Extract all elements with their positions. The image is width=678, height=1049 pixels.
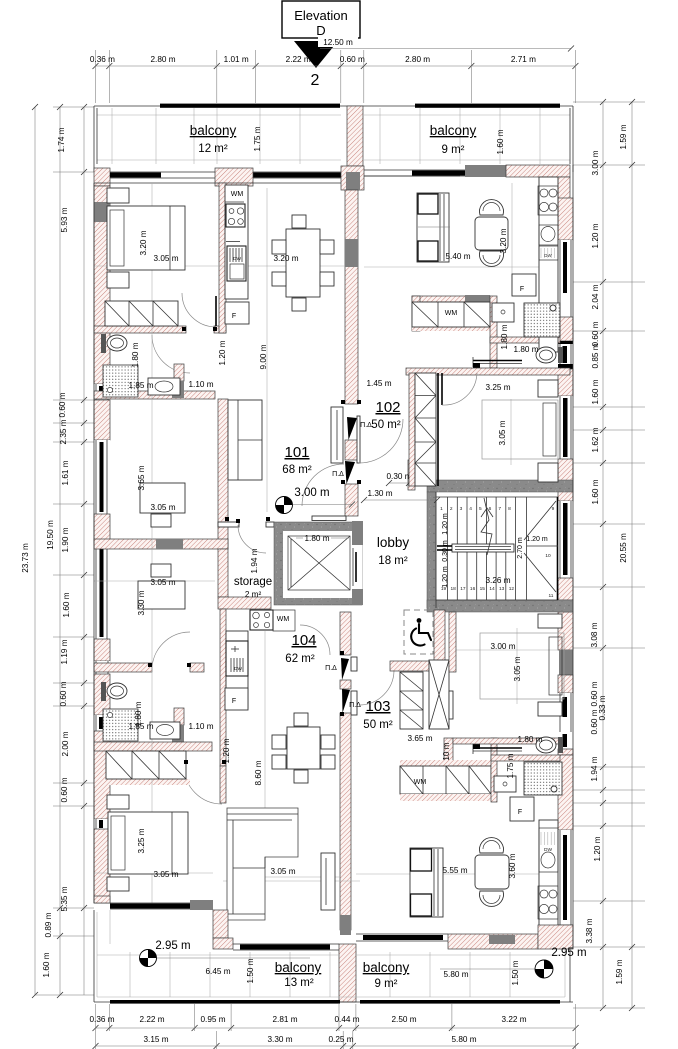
- svg-text:D: D: [316, 23, 325, 38]
- svg-text:5.40 m: 5.40 m: [445, 252, 470, 261]
- svg-text:3.22 m: 3.22 m: [501, 1015, 526, 1024]
- svg-text:4: 4: [469, 506, 472, 512]
- svg-text:F: F: [518, 809, 522, 816]
- svg-text:50 m²: 50 m²: [363, 719, 393, 731]
- svg-text:13 m²: 13 m²: [284, 977, 314, 989]
- svg-text:1.74 m: 1.74 m: [57, 127, 66, 152]
- svg-text:2.22 m: 2.22 m: [139, 1015, 164, 1024]
- svg-text:15: 15: [480, 586, 486, 592]
- svg-text:1.60 m: 1.60 m: [62, 592, 71, 617]
- svg-text:1: 1: [440, 506, 443, 512]
- svg-text:3.05 m: 3.05 m: [270, 867, 295, 876]
- svg-text:2 m²: 2 m²: [245, 590, 262, 599]
- svg-text:3.20 m: 3.20 m: [273, 254, 298, 263]
- svg-text:16: 16: [470, 586, 476, 592]
- svg-text:9: 9: [552, 506, 555, 512]
- svg-text:12: 12: [509, 586, 515, 592]
- svg-text:1.75 m: 1.75 m: [253, 126, 262, 151]
- svg-text:3.08 m: 3.08 m: [590, 622, 599, 647]
- svg-text:0.60 m: 0.60 m: [590, 709, 599, 734]
- svg-text:6: 6: [489, 506, 492, 512]
- svg-text:12 m²: 12 m²: [198, 143, 228, 155]
- svg-text:5.55 m: 5.55 m: [442, 866, 467, 875]
- svg-text:3.65 m: 3.65 m: [407, 734, 432, 743]
- svg-text:0.44 m: 0.44 m: [334, 1015, 359, 1024]
- svg-text:2.04 m: 2.04 m: [591, 284, 600, 309]
- svg-text:0.89 m: 0.89 m: [44, 912, 53, 937]
- svg-text:1.61 m: 1.61 m: [61, 460, 70, 485]
- svg-text:2.70 m: 2.70 m: [517, 537, 524, 559]
- svg-text:5.80 m: 5.80 m: [443, 970, 468, 979]
- svg-text:0.60 m: 0.60 m: [60, 777, 69, 802]
- svg-text:1.19 m: 1.19 m: [60, 639, 69, 664]
- svg-text:103: 103: [365, 698, 390, 715]
- svg-text:3.00 m: 3.00 m: [490, 642, 515, 651]
- svg-text:1.45 m: 1.45 m: [366, 379, 391, 388]
- svg-text:3.30 m: 3.30 m: [267, 1035, 292, 1044]
- svg-text:9.00 m: 9.00 m: [259, 344, 268, 369]
- svg-text:1.62 m: 1.62 m: [591, 427, 600, 452]
- svg-text:23.73 m: 23.73 m: [21, 543, 30, 573]
- svg-text:2.80 m: 2.80 m: [405, 55, 430, 64]
- svg-text:1.20 m: 1.20 m: [218, 340, 227, 365]
- svg-text:101: 101: [284, 444, 309, 461]
- svg-text:3.00 m: 3.00 m: [591, 150, 600, 175]
- svg-text:2.81 m: 2.81 m: [272, 1015, 297, 1024]
- svg-text:10: 10: [545, 553, 551, 559]
- svg-text:3.05 m: 3.05 m: [150, 578, 175, 587]
- svg-text:1.59 m: 1.59 m: [615, 959, 624, 984]
- svg-text:Elevation: Elevation: [294, 8, 347, 23]
- svg-text:0.30 m: 0.30 m: [386, 472, 411, 481]
- svg-text:0.25 m: 0.25 m: [328, 1035, 353, 1044]
- svg-text:5.93 m: 5.93 m: [60, 207, 69, 232]
- svg-text:0.60 m: 0.60 m: [591, 321, 600, 346]
- svg-text:0.36 m: 0.36 m: [90, 55, 115, 64]
- svg-text:3.15 m: 3.15 m: [143, 1035, 168, 1044]
- svg-text:3.05 m: 3.05 m: [153, 254, 178, 263]
- svg-text:0.85 m: 0.85 m: [591, 343, 600, 368]
- svg-text:0.60 m: 0.60 m: [59, 681, 68, 706]
- svg-text:17: 17: [460, 586, 466, 592]
- svg-text:11: 11: [549, 593, 554, 599]
- svg-text:7: 7: [498, 506, 501, 512]
- svg-text:DW: DW: [233, 256, 241, 262]
- svg-text:50 m²: 50 m²: [371, 419, 401, 431]
- svg-text:1.50 m: 1.50 m: [511, 960, 520, 985]
- svg-text:3.05 m: 3.05 m: [150, 503, 175, 512]
- svg-text:8.60 m: 8.60 m: [254, 760, 263, 785]
- svg-text:storage: storage: [234, 576, 272, 588]
- svg-text:0.95 m: 0.95 m: [200, 1015, 225, 1024]
- svg-text:3: 3: [460, 506, 463, 512]
- svg-text:1.94 m: 1.94 m: [590, 756, 599, 781]
- svg-text:1.90 m: 1.90 m: [61, 527, 70, 552]
- svg-text:0.36 m: 0.36 m: [89, 1015, 114, 1024]
- svg-text:0.60 m: 0.60 m: [340, 55, 365, 64]
- svg-text:19.50 m: 19.50 m: [46, 520, 55, 550]
- svg-text:18: 18: [451, 586, 457, 592]
- svg-text:3.20 m: 3.20 m: [499, 228, 508, 253]
- svg-text:18 m²: 18 m²: [378, 555, 408, 567]
- svg-text:2.71 m: 2.71 m: [511, 55, 536, 64]
- svg-text:2: 2: [450, 506, 453, 512]
- svg-text:1.10 m: 1.10 m: [188, 722, 213, 731]
- svg-text:1.85 m: 1.85 m: [128, 381, 153, 390]
- svg-text:1.59 m: 1.59 m: [619, 124, 628, 149]
- svg-text:3.00 m: 3.00 m: [294, 487, 329, 499]
- svg-text:0.30 m: 0.30 m: [442, 540, 449, 562]
- svg-text:balcony: balcony: [363, 960, 410, 975]
- svg-text:3.65 m: 3.65 m: [137, 465, 146, 490]
- svg-text:1.20 m: 1.20 m: [591, 223, 600, 248]
- svg-text:1.10 m: 1.10 m: [188, 380, 213, 389]
- svg-text:3.05 m: 3.05 m: [153, 870, 178, 879]
- svg-text:1.94 m: 1.94 m: [250, 548, 259, 573]
- svg-text:balcony: balcony: [275, 960, 322, 975]
- svg-text:1.80 m: 1.80 m: [513, 345, 538, 354]
- svg-text:Π.Δ: Π.Δ: [360, 422, 372, 429]
- svg-text:14: 14: [489, 586, 495, 592]
- svg-text:2.80 m: 2.80 m: [150, 55, 175, 64]
- svg-text:1.60 m: 1.60 m: [496, 129, 505, 154]
- svg-text:DW: DW: [234, 666, 242, 672]
- svg-text:WM: WM: [231, 191, 244, 198]
- svg-text:1.30 m: 1.30 m: [367, 489, 392, 498]
- svg-text:3.05 m: 3.05 m: [513, 656, 522, 681]
- svg-text:2.35 m: 2.35 m: [59, 419, 68, 444]
- svg-text:1.20 m: 1.20 m: [593, 836, 602, 861]
- svg-text:2: 2: [311, 72, 320, 89]
- svg-text:5: 5: [479, 506, 482, 512]
- svg-text:2.95 m: 2.95 m: [551, 947, 586, 959]
- svg-text:2.22 m: 2.22 m: [286, 55, 311, 64]
- svg-text:1.20 m: 1.20 m: [442, 566, 449, 588]
- svg-text:1.60 m: 1.60 m: [591, 479, 600, 504]
- svg-text:lobby: lobby: [377, 535, 410, 550]
- svg-text:Π.Δ: Π.Δ: [332, 471, 344, 478]
- svg-text:102: 102: [375, 399, 400, 416]
- svg-text:Π.Δ: Π.Δ: [325, 665, 337, 672]
- svg-text:3.60 m: 3.60 m: [508, 853, 517, 878]
- svg-text:3.25 m: 3.25 m: [485, 383, 510, 392]
- svg-text:8: 8: [508, 506, 511, 512]
- svg-text:2.50 m: 2.50 m: [391, 1015, 416, 1024]
- svg-text:1.60 m: 1.60 m: [42, 952, 51, 977]
- svg-text:1.50 m: 1.50 m: [246, 958, 255, 983]
- svg-text:6.45 m: 6.45 m: [205, 967, 230, 976]
- svg-text:68 m²: 68 m²: [282, 464, 312, 476]
- svg-text:1.60 m: 1.60 m: [591, 379, 600, 404]
- svg-text:1.85 m: 1.85 m: [128, 722, 153, 731]
- svg-text:0.33 m: 0.33 m: [598, 695, 607, 720]
- svg-text:1.80 m: 1.80 m: [304, 534, 329, 543]
- svg-text:3.05 m: 3.05 m: [498, 420, 507, 445]
- svg-text:WM: WM: [414, 779, 427, 786]
- svg-text:1.80 m: 1.80 m: [500, 324, 509, 349]
- svg-text:5.80 m: 5.80 m: [451, 1035, 476, 1044]
- svg-text:Π.Δ: Π.Δ: [349, 702, 361, 709]
- svg-text:2.00 m: 2.00 m: [61, 731, 70, 756]
- svg-text:1.80 m: 1.80 m: [517, 735, 542, 744]
- svg-text:3.25 m: 3.25 m: [137, 828, 146, 853]
- svg-text:F: F: [520, 286, 524, 293]
- svg-text:1.80 m: 1.80 m: [131, 342, 140, 367]
- svg-text:1.20 m: 1.20 m: [222, 738, 231, 763]
- svg-text:12.50 m: 12.50 m: [323, 38, 353, 47]
- svg-text:2.95 m: 2.95 m: [155, 940, 190, 952]
- svg-text:F: F: [232, 313, 236, 320]
- svg-text:F: F: [232, 698, 236, 705]
- svg-text:13: 13: [499, 586, 505, 592]
- svg-text:3.26 m: 3.26 m: [485, 576, 510, 585]
- svg-text:9 m²: 9 m²: [442, 144, 465, 156]
- svg-text:3.30 m: 3.30 m: [137, 590, 146, 615]
- svg-text:20.55 m: 20.55 m: [619, 533, 628, 563]
- svg-text:3.20 m: 3.20 m: [139, 230, 148, 255]
- svg-text:balcony: balcony: [190, 123, 237, 138]
- svg-text:1.20 m: 1.20 m: [526, 536, 548, 543]
- svg-text:9 m²: 9 m²: [375, 978, 398, 990]
- svg-text:WM: WM: [445, 310, 458, 317]
- svg-text:balcony: balcony: [430, 123, 477, 138]
- svg-text:104: 104: [291, 632, 316, 649]
- svg-text:1.20 m: 1.20 m: [442, 513, 449, 535]
- svg-text:1.01 m: 1.01 m: [224, 55, 249, 64]
- svg-text:5.35 m: 5.35 m: [60, 886, 69, 911]
- svg-text:WM: WM: [277, 616, 290, 623]
- svg-text:1.75 m: 1.75 m: [506, 753, 515, 778]
- svg-text:62 m²: 62 m²: [285, 653, 315, 665]
- svg-text:3.38 m: 3.38 m: [585, 918, 594, 943]
- svg-text:0.60 m: 0.60 m: [58, 392, 67, 417]
